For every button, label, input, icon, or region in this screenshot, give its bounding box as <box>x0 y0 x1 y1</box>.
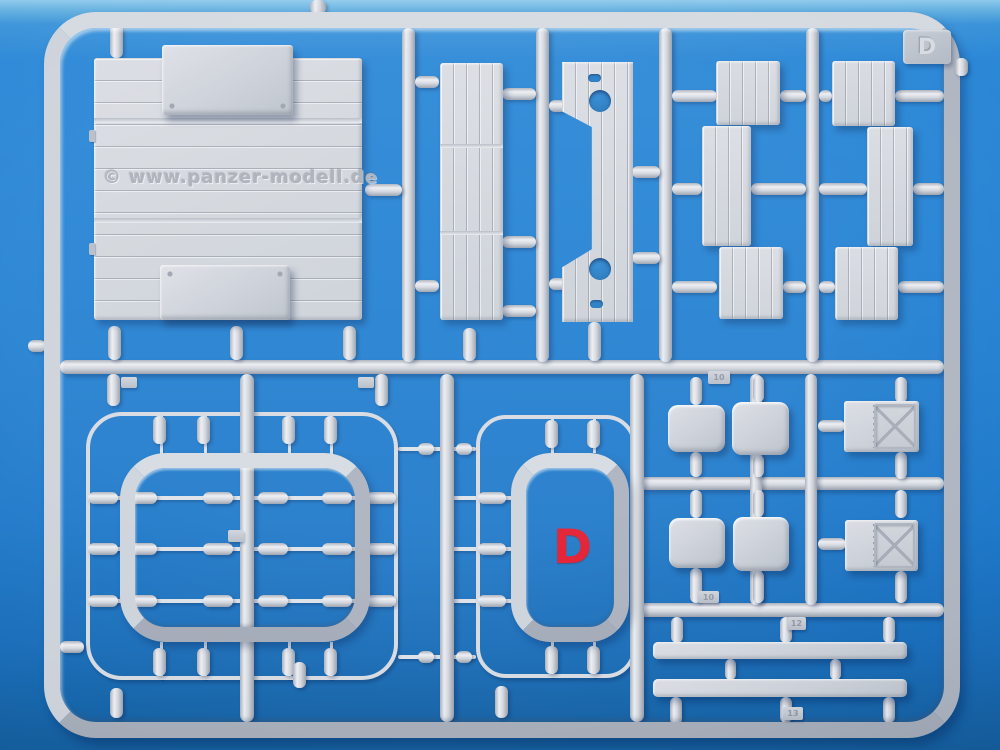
sprue-photo: D © www.panzer-modell.de <box>0 0 1000 750</box>
part-number-tab <box>121 377 137 388</box>
part-number-tab <box>228 530 244 542</box>
red-letter-annotation: D <box>553 520 592 575</box>
sprue-frame-nub <box>955 58 968 76</box>
panel-raised-box-top <box>162 45 293 115</box>
sprue-letter-tab: D <box>903 30 951 64</box>
part-number-tab <box>358 377 374 388</box>
part-number-tab: 12 <box>787 617 806 630</box>
bracket-hole <box>589 90 611 112</box>
bracket-slot <box>590 300 603 308</box>
tarp-hoop-frame-left <box>120 453 370 642</box>
panel-raised-box-bottom <box>160 265 290 320</box>
bracket-hole <box>589 258 611 280</box>
bracket-slot <box>588 74 601 82</box>
part-number-tab: 10 <box>708 371 730 384</box>
watermark: © www.panzer-modell.de <box>103 167 378 188</box>
part-number-tab: 10 <box>698 591 719 603</box>
part-number-tab: 13 <box>783 707 803 720</box>
